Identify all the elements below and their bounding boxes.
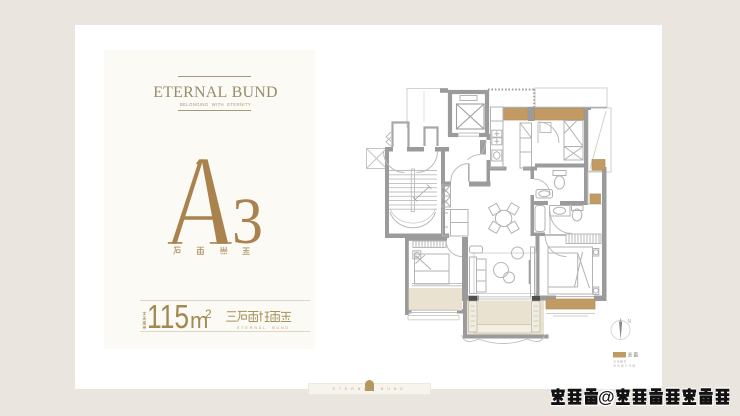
- svg-text:@: @: [598, 388, 615, 407]
